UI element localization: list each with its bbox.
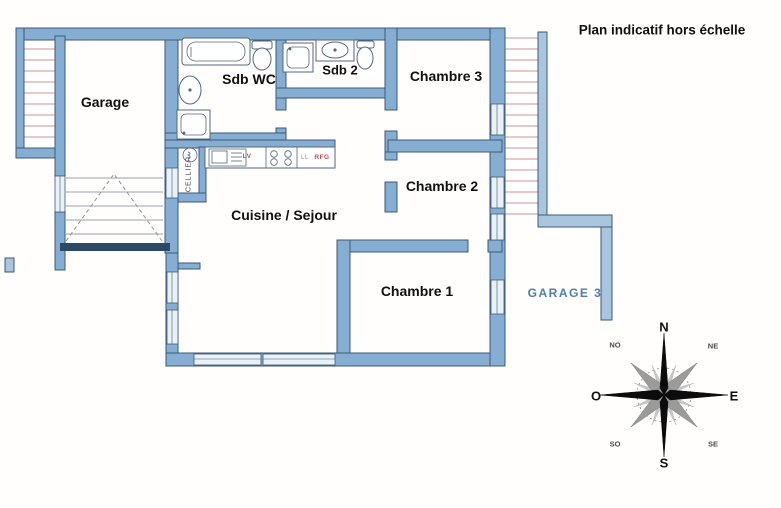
compass-label-o: O	[591, 389, 601, 404]
window	[167, 272, 178, 303]
shower-icon	[177, 110, 210, 139]
compass-rose-icon	[600, 333, 728, 457]
room-label-sdb2: Sdb 2	[322, 64, 357, 77]
vanity-sink-icon	[316, 40, 354, 61]
room-label-sdb-wc: Sdb WC	[222, 72, 276, 86]
room-label-cuisine-sejour: Cuisine / Sejour	[231, 208, 337, 222]
room-label-garage: Garage	[81, 95, 129, 109]
compass-label-n: N	[659, 320, 668, 335]
appliance-label-ll: LL	[301, 155, 309, 161]
compass-label-se: SE	[708, 440, 718, 449]
window	[166, 168, 178, 198]
compass-label-e: E	[730, 389, 739, 404]
room-label-cellier: CELLIER	[186, 156, 193, 192]
compass-label-no: NO	[609, 341, 620, 350]
window	[491, 104, 504, 135]
garage-door-icon	[60, 174, 170, 251]
window	[491, 177, 504, 208]
bathtub-icon	[182, 38, 250, 65]
window	[491, 280, 504, 314]
toilet-icon	[252, 41, 272, 70]
toilet-icon	[357, 41, 374, 69]
floor-plan-canvas: Plan indicatif hors échelle Garage Sdb W…	[0, 0, 781, 508]
plan-title: Plan indicatif hors échelle	[579, 23, 746, 37]
floor-plan-drawing	[0, 0, 781, 508]
room-label-chambre3: Chambre 3	[410, 69, 482, 83]
appliance-label-lv: LV	[243, 154, 252, 161]
room-label-chambre2: Chambre 2	[406, 179, 478, 193]
pedestal-sink-icon	[179, 76, 201, 104]
compass-label-s: S	[660, 456, 669, 471]
hatch-strip-right	[505, 32, 538, 218]
window	[491, 214, 504, 240]
appliance-label-rfg: RFG	[314, 155, 329, 162]
hatch-strip-left	[23, 36, 55, 148]
window	[55, 176, 65, 212]
window	[194, 354, 261, 365]
room-label-garage3: GARAGE 3	[528, 287, 603, 299]
room-label-chambre1: Chambre 1	[381, 284, 453, 298]
compass-label-so: SO	[610, 440, 621, 449]
compass-label-ne: NE	[708, 342, 718, 351]
shower-icon	[283, 43, 313, 72]
window	[167, 310, 178, 344]
window	[263, 354, 335, 365]
